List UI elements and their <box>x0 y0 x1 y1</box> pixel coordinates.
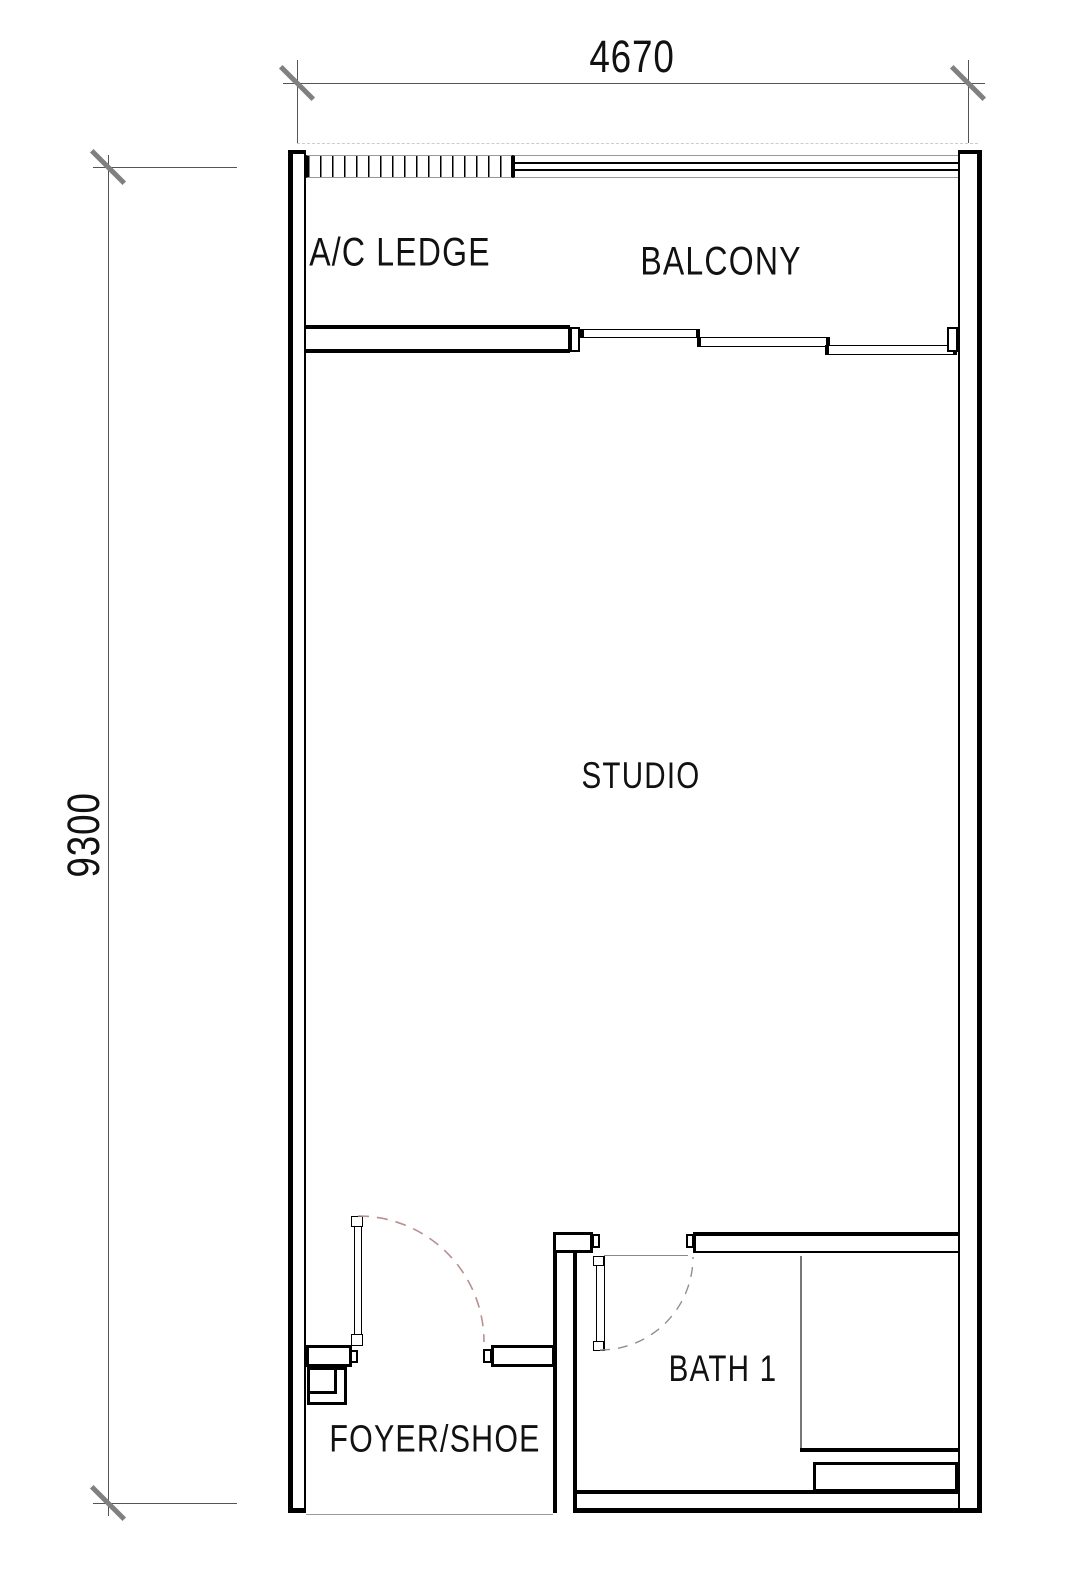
left-dimension-extension-top <box>93 167 237 168</box>
shower-partition-line <box>800 1256 802 1449</box>
room-label-balcony: BALCONY <box>640 240 801 285</box>
sliding-door-panel-1 <box>580 329 700 338</box>
entry-door-hinge-top <box>351 1216 363 1227</box>
left-dimension-line <box>108 155 109 1516</box>
top-dimension-extension-left <box>297 60 298 143</box>
room-label-ac-ledge: A/C LEDGE <box>309 231 491 276</box>
entry-wall-right <box>491 1345 555 1367</box>
room-label-foyer: FOYER/SHOE <box>329 1419 540 1462</box>
sliding-door-jamb-right <box>947 327 958 352</box>
floor-plan: 4670 9300 <box>0 0 1087 1590</box>
entry-door-leaf <box>354 1216 362 1345</box>
unit-wall-right <box>958 150 982 1513</box>
entry-wall-left <box>306 1345 352 1367</box>
top-dimension-line <box>283 83 985 84</box>
entry-door-stop-left <box>350 1350 358 1363</box>
foyer-entry-threshold-line <box>306 1514 553 1515</box>
bath-wall-bottom <box>577 1490 958 1513</box>
unit-wall-left <box>288 150 306 1513</box>
glass-line <box>515 169 958 171</box>
bath-door-threshold-line <box>604 1255 688 1256</box>
bath-wall-top-right <box>693 1232 958 1253</box>
ac-ledge-parapet-wall <box>306 325 570 353</box>
shower-kerb-line <box>800 1448 958 1452</box>
balcony-window <box>513 155 958 178</box>
entry-door-hinge-bottom <box>351 1334 363 1346</box>
glass-line <box>515 162 958 164</box>
bath-door-hinge-bottom <box>593 1341 604 1351</box>
top-dimension-extension-right <box>968 60 969 143</box>
left-dimension-value: 9300 <box>58 792 110 877</box>
bath-door-stop-left <box>592 1234 600 1248</box>
top-dimension-value: 4670 <box>589 31 674 83</box>
entry-door-swing-arc <box>358 1216 484 1342</box>
bath-door-hinge-top <box>593 1256 604 1266</box>
room-label-bath: BATH 1 <box>669 1348 778 1390</box>
left-dimension-extension-bottom <box>93 1503 237 1504</box>
shoe-cabinet-step-inner <box>307 1367 337 1394</box>
bath-vanity-step <box>813 1462 958 1492</box>
bath-wall-top-left <box>553 1232 593 1253</box>
bath-door-swing-arc <box>600 1257 693 1350</box>
ac-ledge-grille <box>306 155 513 178</box>
room-label-studio: STUDIO <box>581 755 700 797</box>
sliding-door-jamb-left <box>570 327 580 352</box>
sliding-door-panel-2 <box>697 337 830 347</box>
sliding-door-panel-3 <box>825 345 957 355</box>
slab-edge-line <box>297 143 978 144</box>
bath-door-leaf <box>596 1256 605 1351</box>
foyer-bath-wall <box>553 1232 577 1513</box>
